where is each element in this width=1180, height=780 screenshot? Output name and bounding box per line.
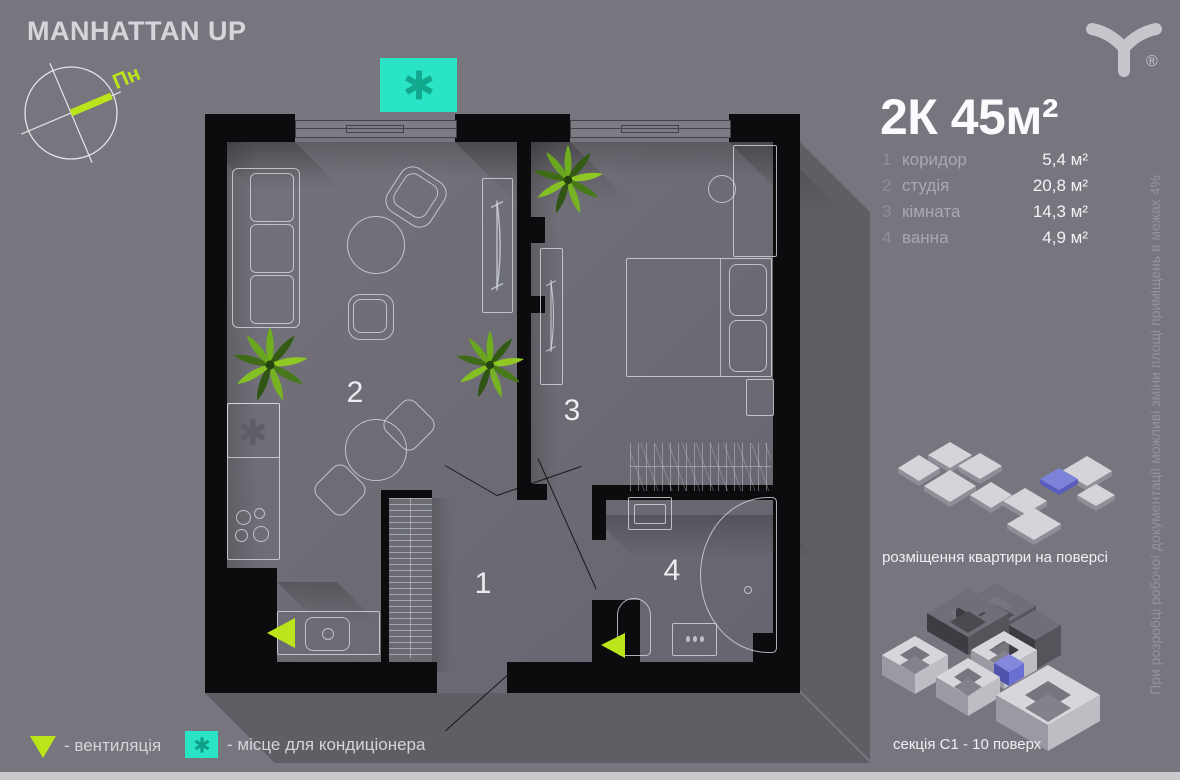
floor-placement-diagram [875,425,1125,550]
plant-icon [526,138,610,222]
plant-icon [225,320,315,410]
floor-plan: 2 3 1 4 [205,114,800,693]
stool [708,175,736,203]
brand-logo-icon: ® [1082,20,1172,80]
room-area: 5,4 м² [1042,150,1088,170]
disclaimer-text: При розробці робочої документації можлив… [1147,135,1163,735]
legend-row: 1 коридор 5,4 м² [882,150,1088,176]
pillow [729,264,767,316]
bathtub-drain [744,586,752,594]
room-name: студія [902,176,1033,196]
ac-legend-icon [185,731,218,758]
sofa-cushion [250,173,294,222]
faucet [322,628,334,640]
stove-burner [235,529,248,542]
room-legend: 1 коридор 5,4 м² 2 студія 20,8 м² 3 кімн… [882,150,1088,254]
floor-placement-caption: розміщення квартири на поверсі [860,549,1130,566]
wardrobe [482,178,513,313]
stove-burner [254,508,265,519]
washing-machine [672,623,717,656]
footer-bar [0,772,1180,780]
plan-shadow-right [800,142,870,760]
room-label: 1 [468,567,498,601]
nightstand [746,379,774,416]
window [295,120,457,138]
room-number: 3 [882,202,902,222]
room-name: ванна [902,228,1042,248]
vent-marker-icon [601,633,625,658]
kitchen-ac-asterisk-icon [238,417,268,447]
legend-row: 2 студія 20,8 м² [882,176,1088,202]
ac-legend-label: - місце для кондиціонера [227,735,547,755]
wardrobe [540,248,563,385]
stove-burner [253,526,269,542]
vent-marker-icon [267,618,295,648]
apartment-title: 2К 45м² [880,88,1058,146]
vent-legend-icon [30,736,56,758]
room-number: 1 [882,150,902,170]
room-number: 4 [882,228,902,248]
brand-title: MANHATTAN UP [27,16,246,47]
wall-segment [381,490,432,498]
room-area: 4,9 м² [1042,228,1088,248]
coffee-table [347,216,405,274]
plant-icon [449,324,531,406]
bathroom-sink [628,497,672,530]
room-label: 4 [657,554,687,588]
wall-segment [205,662,437,693]
room-area: 20,8 м² [1033,176,1088,196]
window [570,120,731,138]
wall-segment [381,490,389,670]
sofa-cushion [250,275,294,324]
compass-icon: Пн [8,52,178,182]
room-label: 3 [557,394,587,428]
section-diagram [868,576,1128,761]
floorplan-page: { "brand": {"title": "MANHATTAN UP", "re… [0,0,1180,780]
chair [348,294,394,340]
stove-burner [236,510,251,525]
legend-row: 4 ванна 4,9 м² [882,228,1088,254]
room-name: коридор [902,150,1042,170]
room-label: 2 [340,376,370,410]
room-name: кімната [902,202,1033,222]
wall-segment [592,500,606,540]
legend-row: 3 кімната 14,3 м² [882,202,1088,228]
registered-mark: ® [1146,53,1158,70]
rug [630,443,771,491]
wall-segment [773,114,800,693]
room-area: 14,3 м² [1033,202,1088,222]
ac-place-marker [380,58,457,112]
room-number: 2 [882,176,902,196]
sofa-cushion [250,224,294,273]
pillow [729,320,767,372]
desk [733,145,777,257]
section-caption: секція С1 - 10 поверх [893,736,1041,753]
compass-north-label: Пн [109,62,144,94]
